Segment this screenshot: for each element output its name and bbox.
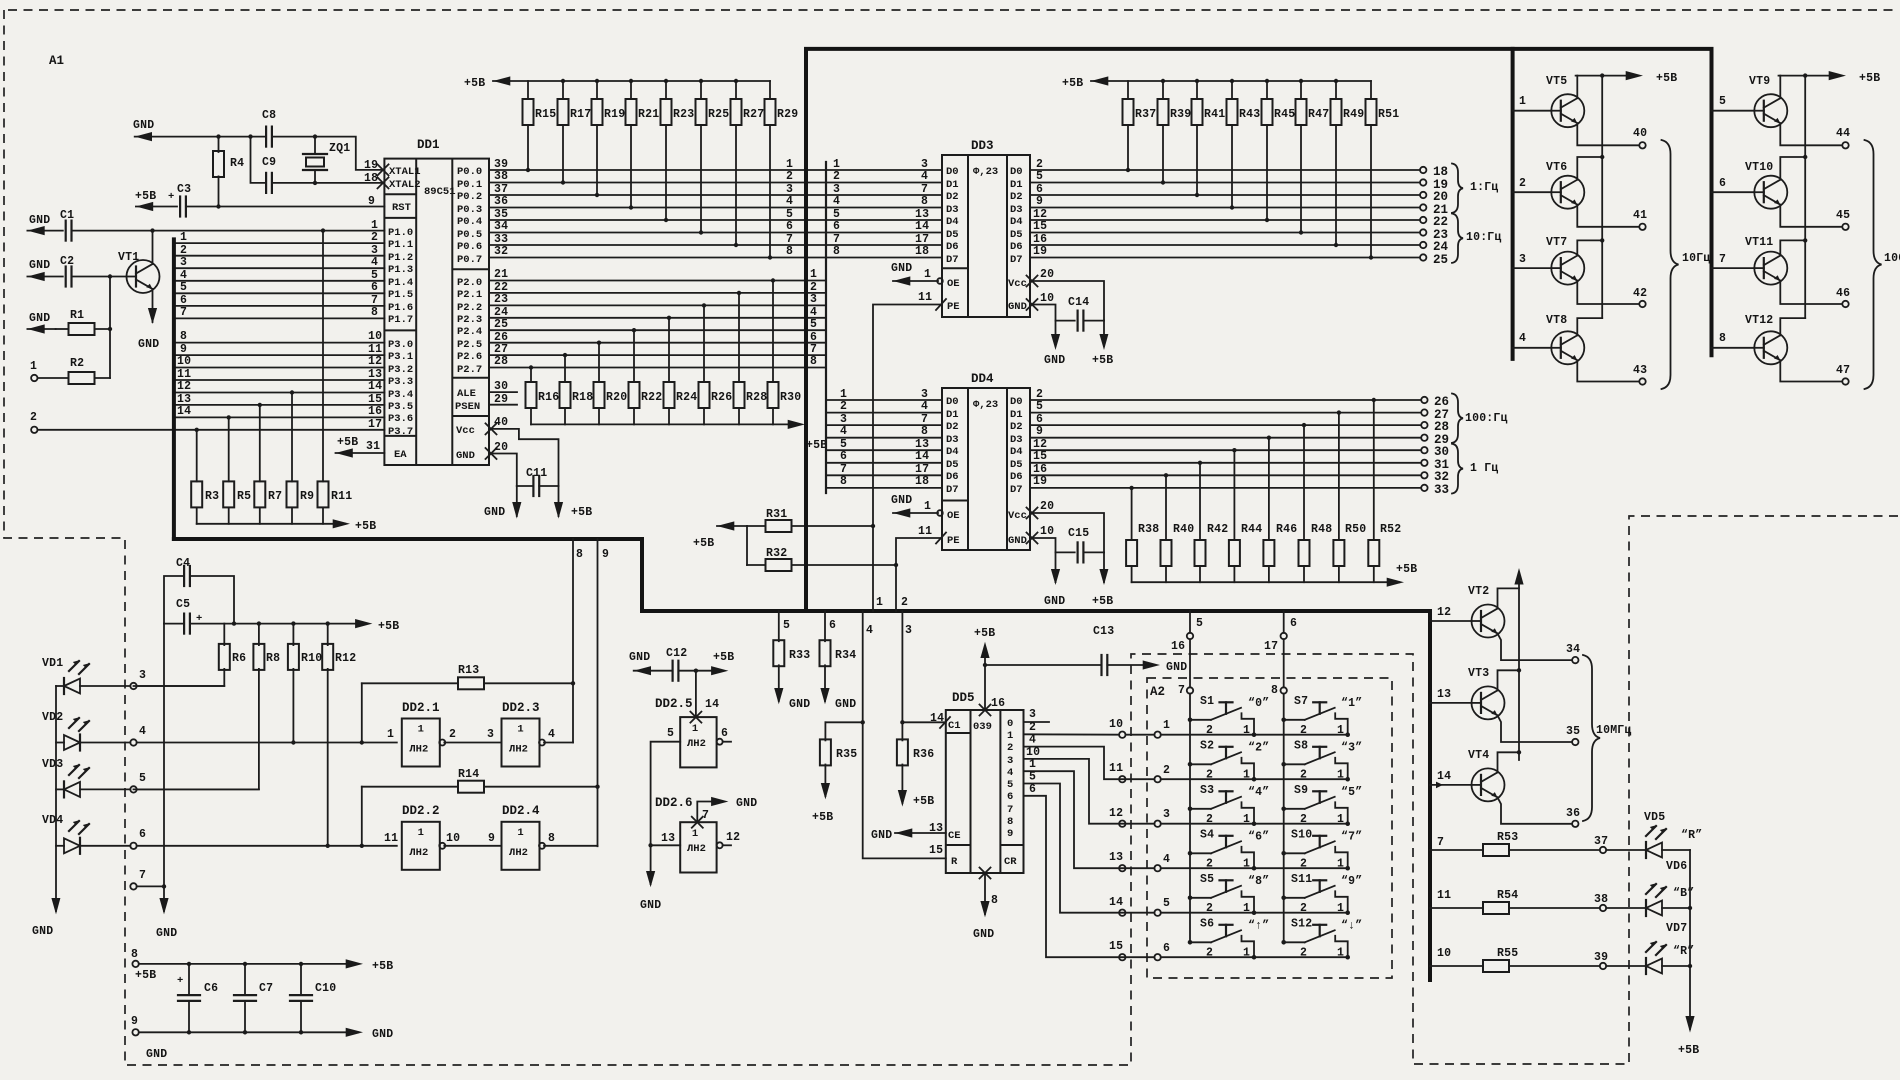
svg-text:R23: R23	[673, 108, 694, 121]
svg-text:R9: R9	[300, 490, 314, 503]
svg-text:DD4: DD4	[971, 372, 994, 386]
svg-text:“↓”: “↓”	[1341, 920, 1362, 933]
svg-text:9: 9	[1036, 195, 1043, 208]
svg-text:ZQ1: ZQ1	[329, 142, 350, 155]
svg-text:R1: R1	[70, 309, 84, 322]
svg-text:1:Гц: 1:Гц	[1470, 181, 1498, 194]
svg-text:8: 8	[131, 948, 138, 961]
svg-text:7: 7	[1437, 836, 1444, 849]
svg-text:10: 10	[368, 330, 382, 343]
svg-text:0: 0	[1007, 718, 1013, 730]
svg-text:8: 8	[180, 330, 187, 343]
svg-text:7: 7	[1007, 804, 1013, 816]
svg-text:40: 40	[494, 416, 508, 429]
svg-text:D0: D0	[946, 396, 959, 408]
svg-text:R46: R46	[1276, 523, 1297, 536]
svg-text:44: 44	[1836, 127, 1850, 140]
svg-text:P0.5: P0.5	[457, 229, 482, 241]
svg-text:+5B: +5B	[355, 520, 376, 533]
svg-text:5: 5	[139, 772, 146, 785]
svg-text:10Гц: 10Гц	[1682, 252, 1710, 265]
svg-text:D6: D6	[946, 241, 959, 253]
svg-text:15: 15	[1109, 940, 1123, 953]
svg-text:GND: GND	[1044, 354, 1065, 367]
svg-text:D4: D4	[1010, 216, 1023, 228]
svg-text:GND: GND	[891, 494, 912, 507]
svg-text:+5B: +5B	[713, 651, 734, 664]
svg-text:100:Гц: 100:Гц	[1465, 412, 1508, 425]
svg-text:5: 5	[180, 281, 187, 294]
svg-text:S7: S7	[1294, 695, 1308, 708]
svg-text:7: 7	[702, 809, 709, 822]
svg-text:GND: GND	[1044, 595, 1065, 608]
svg-text:PE: PE	[947, 535, 960, 547]
svg-text:28: 28	[1434, 420, 1449, 434]
svg-text:S11: S11	[1291, 873, 1312, 886]
svg-text:DD2.6: DD2.6	[655, 796, 693, 810]
svg-text:D4: D4	[946, 446, 959, 458]
svg-text:8: 8	[576, 548, 583, 561]
svg-text:1: 1	[876, 596, 883, 609]
svg-text:8: 8	[1271, 684, 1278, 697]
svg-text:P0.7: P0.7	[457, 254, 482, 266]
svg-text:6: 6	[721, 727, 728, 740]
svg-text:6: 6	[139, 828, 146, 841]
svg-text:P3.2: P3.2	[388, 364, 413, 376]
svg-text:“4”: “4”	[1248, 786, 1269, 799]
svg-text:32: 32	[1434, 470, 1449, 484]
svg-text:D7: D7	[946, 254, 959, 266]
svg-text:16: 16	[991, 697, 1005, 710]
svg-text:4: 4	[921, 400, 928, 413]
svg-text:3: 3	[1163, 808, 1170, 821]
svg-text:C10: C10	[315, 982, 336, 995]
svg-text:R5: R5	[237, 490, 251, 503]
svg-text:20: 20	[1040, 268, 1054, 281]
svg-text:3: 3	[810, 293, 817, 306]
svg-text:D3: D3	[946, 204, 959, 216]
svg-text:+5B: +5B	[974, 627, 995, 640]
svg-text:2: 2	[1300, 724, 1307, 737]
svg-text:18: 18	[364, 172, 378, 185]
svg-text:15: 15	[929, 844, 943, 857]
svg-text:S6: S6	[1200, 918, 1214, 931]
svg-text:PE: PE	[947, 301, 960, 313]
svg-text:+5B: +5B	[571, 506, 592, 519]
svg-text:GND: GND	[640, 899, 661, 912]
svg-text:D7: D7	[1010, 254, 1023, 266]
svg-text:13: 13	[661, 832, 675, 845]
svg-text:12: 12	[1437, 606, 1451, 619]
svg-text:+5B: +5B	[693, 537, 714, 550]
svg-text:4: 4	[786, 195, 793, 208]
svg-text:R35: R35	[836, 748, 857, 761]
svg-text:R48: R48	[1311, 523, 1332, 536]
svg-text:GND: GND	[629, 651, 650, 664]
svg-text:R22: R22	[641, 391, 662, 404]
svg-text:D0: D0	[1010, 166, 1023, 178]
svg-text:4: 4	[371, 256, 378, 269]
svg-text:7: 7	[1719, 253, 1726, 266]
svg-text:GND: GND	[138, 338, 159, 351]
svg-text:GND: GND	[1008, 535, 1027, 547]
svg-text:14: 14	[177, 405, 191, 418]
svg-text:D5: D5	[946, 459, 959, 471]
svg-text:17: 17	[1264, 640, 1278, 653]
svg-text:3: 3	[1007, 755, 1013, 767]
svg-text:D1: D1	[946, 409, 959, 421]
svg-text:6: 6	[1029, 783, 1036, 796]
svg-text:23: 23	[494, 293, 508, 306]
svg-text:R4: R4	[230, 157, 244, 170]
svg-text:VT4: VT4	[1468, 749, 1489, 762]
svg-text:R55: R55	[1497, 947, 1518, 960]
svg-text:Ф,23: Ф,23	[973, 399, 998, 411]
svg-text:12: 12	[368, 355, 382, 368]
svg-text:S5: S5	[1200, 873, 1214, 886]
svg-text:GND: GND	[372, 1028, 393, 1041]
svg-text:1: 1	[180, 231, 187, 244]
svg-text:GND: GND	[29, 259, 50, 272]
svg-text:D6: D6	[946, 471, 959, 483]
svg-text:P0.4: P0.4	[457, 216, 482, 228]
svg-text:P2.4: P2.4	[457, 326, 482, 338]
svg-text:GND: GND	[29, 214, 50, 227]
svg-text:P1.0: P1.0	[388, 227, 413, 239]
svg-text:8: 8	[833, 245, 840, 258]
svg-text:GND: GND	[146, 1048, 167, 1061]
svg-text:19: 19	[1033, 245, 1047, 258]
svg-text:+5B: +5B	[372, 960, 393, 973]
svg-text:24: 24	[1433, 240, 1449, 254]
svg-text:+5B: +5B	[1062, 77, 1083, 90]
svg-text:8: 8	[840, 475, 847, 488]
svg-text:8: 8	[786, 245, 793, 258]
svg-text:37: 37	[1594, 835, 1608, 848]
svg-text:XTAL1: XTAL1	[389, 166, 421, 178]
svg-text:“2”: “2”	[1248, 742, 1269, 755]
svg-text:+5B: +5B	[913, 795, 934, 808]
svg-text:13: 13	[1109, 851, 1123, 864]
svg-text:P0.1: P0.1	[457, 179, 482, 191]
svg-text:11: 11	[918, 525, 932, 538]
svg-text:VD4: VD4	[42, 814, 63, 827]
svg-text:1: 1	[1519, 95, 1526, 108]
svg-text:2: 2	[1300, 947, 1307, 960]
svg-text:R18: R18	[572, 391, 593, 404]
svg-text:Vcc: Vcc	[1008, 510, 1027, 522]
svg-text:6: 6	[1290, 617, 1297, 630]
svg-text:GND: GND	[29, 312, 50, 325]
svg-text:R26: R26	[711, 391, 732, 404]
svg-text:“1”: “1”	[1341, 697, 1362, 710]
svg-text:DD1: DD1	[417, 138, 440, 152]
svg-text:2: 2	[1163, 764, 1170, 777]
svg-text:14: 14	[915, 220, 929, 233]
svg-text:+5B: +5B	[1678, 1044, 1699, 1057]
svg-text:1: 1	[387, 728, 394, 741]
svg-text:14: 14	[705, 698, 719, 711]
svg-text:1: 1	[1337, 902, 1344, 915]
svg-text:39: 39	[1594, 951, 1608, 964]
svg-text:10: 10	[1437, 947, 1451, 960]
svg-text:5: 5	[1029, 771, 1036, 784]
svg-text:89C51: 89C51	[424, 186, 456, 198]
svg-text:5: 5	[1036, 170, 1043, 183]
svg-text:+: +	[177, 975, 183, 987]
svg-text:R17: R17	[570, 108, 591, 121]
svg-text:VT11: VT11	[1745, 236, 1773, 249]
svg-text:2: 2	[1300, 769, 1307, 782]
svg-text:P1.6: P1.6	[388, 302, 413, 314]
svg-text:1: 1	[924, 268, 931, 281]
svg-text:41: 41	[1633, 209, 1647, 222]
svg-text:4: 4	[1163, 853, 1170, 866]
svg-text:+5B: +5B	[337, 436, 358, 449]
svg-text:28: 28	[494, 355, 508, 368]
svg-text:4: 4	[139, 725, 146, 738]
svg-text:P0.6: P0.6	[457, 241, 482, 253]
svg-text:R36: R36	[913, 748, 934, 761]
svg-text:ALE: ALE	[457, 388, 476, 400]
svg-text:D4: D4	[946, 216, 959, 228]
svg-text:S2: S2	[1200, 740, 1214, 753]
svg-text:GND: GND	[484, 506, 505, 519]
svg-text:R30: R30	[780, 391, 801, 404]
svg-text:17: 17	[368, 418, 382, 431]
svg-text:34: 34	[1566, 643, 1580, 656]
svg-text:R27: R27	[743, 108, 764, 121]
svg-text:36: 36	[1566, 807, 1580, 820]
svg-text:A2: A2	[1150, 685, 1165, 699]
svg-text:P0.0: P0.0	[457, 166, 482, 178]
svg-text:6: 6	[1719, 177, 1726, 190]
svg-text:3: 3	[487, 728, 494, 741]
svg-text:+5B: +5B	[464, 77, 485, 90]
svg-text:R10: R10	[301, 652, 322, 665]
svg-text:2: 2	[833, 170, 840, 183]
svg-text:PSEN: PSEN	[455, 401, 480, 413]
svg-text:+5B: +5B	[135, 969, 156, 982]
svg-text:VT8: VT8	[1546, 314, 1567, 327]
svg-text:R54: R54	[1497, 889, 1518, 902]
svg-text:9: 9	[602, 548, 609, 561]
svg-text:16: 16	[1171, 640, 1185, 653]
svg-text:D5: D5	[946, 229, 959, 241]
svg-text:GND: GND	[835, 698, 856, 711]
svg-text:R37: R37	[1135, 108, 1156, 121]
svg-text:C6: C6	[204, 982, 218, 995]
svg-text:6: 6	[840, 450, 847, 463]
svg-text:42: 42	[1633, 287, 1647, 300]
svg-text:1: 1	[1243, 902, 1250, 915]
svg-text:DD2.4: DD2.4	[502, 804, 540, 818]
svg-text:R13: R13	[458, 664, 479, 677]
svg-text:CE: CE	[948, 830, 961, 842]
svg-text:XTAL2: XTAL2	[389, 179, 421, 191]
svg-text:D2: D2	[1010, 421, 1023, 433]
svg-text:4: 4	[921, 170, 928, 183]
svg-text:8: 8	[548, 832, 555, 845]
svg-text:S10: S10	[1291, 829, 1312, 842]
svg-text:P3.4: P3.4	[388, 389, 413, 401]
svg-text:+5B: +5B	[135, 190, 156, 203]
svg-text:R41: R41	[1204, 108, 1225, 121]
svg-text:19: 19	[364, 159, 378, 172]
svg-text:C3: C3	[177, 183, 191, 196]
svg-text:+5B: +5B	[806, 439, 827, 452]
svg-text:5: 5	[1719, 95, 1726, 108]
svg-text:R11: R11	[331, 490, 352, 503]
svg-text:2: 2	[1206, 813, 1213, 826]
svg-text:Vcc: Vcc	[1008, 278, 1027, 290]
svg-text:GND: GND	[1008, 301, 1027, 313]
svg-text:C14: C14	[1068, 296, 1089, 309]
svg-text:20: 20	[1433, 190, 1448, 204]
svg-text:5: 5	[667, 727, 674, 740]
svg-text:11: 11	[384, 832, 398, 845]
svg-text:VT3: VT3	[1468, 667, 1489, 680]
svg-text:R16: R16	[538, 391, 559, 404]
svg-text:R44: R44	[1241, 523, 1262, 536]
svg-text:2: 2	[1206, 769, 1213, 782]
svg-text:D1: D1	[1010, 179, 1023, 191]
svg-text:9: 9	[1036, 425, 1043, 438]
svg-text:DD2.2: DD2.2	[402, 804, 440, 818]
svg-text:1: 1	[1243, 947, 1250, 960]
svg-text:3: 3	[139, 669, 146, 682]
svg-text:GND: GND	[32, 925, 53, 938]
svg-text:“R”: “R”	[1681, 829, 1702, 842]
svg-text:R51: R51	[1378, 108, 1399, 121]
svg-text:6: 6	[1163, 942, 1170, 955]
svg-text:D7: D7	[1010, 484, 1023, 496]
svg-text:47: 47	[1836, 364, 1850, 377]
svg-text:+5B: +5B	[378, 620, 399, 633]
svg-text:D5: D5	[1010, 229, 1023, 241]
svg-text:5: 5	[1163, 897, 1170, 910]
svg-text:R: R	[951, 856, 958, 868]
svg-text:P3.0: P3.0	[388, 339, 413, 351]
svg-text:C11: C11	[526, 467, 547, 480]
svg-text:R29: R29	[777, 108, 798, 121]
svg-text:D2: D2	[1010, 191, 1023, 203]
svg-text:EA: EA	[394, 449, 407, 461]
svg-text:25: 25	[494, 318, 508, 331]
svg-text:GND: GND	[133, 119, 154, 132]
svg-text:R34: R34	[835, 649, 856, 662]
svg-text:14: 14	[915, 450, 929, 463]
svg-text:3: 3	[1029, 708, 1036, 721]
svg-text:9: 9	[368, 195, 375, 208]
svg-text:+: +	[168, 191, 174, 203]
svg-text:1: 1	[1243, 813, 1250, 826]
svg-text:12: 12	[726, 831, 740, 844]
svg-text:P2.7: P2.7	[457, 364, 482, 376]
svg-text:4: 4	[1007, 767, 1013, 779]
svg-text:A1: A1	[49, 54, 64, 68]
svg-text:R42: R42	[1207, 523, 1228, 536]
svg-text:D5: D5	[1010, 459, 1023, 471]
svg-text:P2.5: P2.5	[457, 339, 482, 351]
svg-text:S12: S12	[1291, 918, 1312, 931]
svg-text:“5”: “5”	[1341, 786, 1362, 799]
svg-text:8: 8	[1007, 816, 1013, 828]
svg-text:R53: R53	[1497, 831, 1518, 844]
svg-text:P0.3: P0.3	[457, 204, 482, 216]
svg-text:2: 2	[1519, 177, 1526, 190]
svg-text:1: 1	[1337, 858, 1344, 871]
svg-text:2: 2	[786, 170, 793, 183]
svg-text:10МГц: 10МГц	[1596, 724, 1632, 737]
svg-text:1: 1	[924, 500, 931, 513]
svg-text:30: 30	[494, 380, 508, 393]
svg-text:P2.0: P2.0	[457, 277, 482, 289]
svg-text:2: 2	[1300, 813, 1307, 826]
svg-text:1: 1	[30, 360, 37, 373]
svg-text:14: 14	[368, 380, 382, 393]
svg-text:14: 14	[1109, 896, 1123, 909]
svg-text:D1: D1	[946, 179, 959, 191]
svg-text:“3”: “3”	[1341, 742, 1362, 755]
svg-text:P2.2: P2.2	[457, 302, 482, 314]
svg-text:P1.4: P1.4	[388, 277, 413, 289]
svg-text:1: 1	[1337, 724, 1344, 737]
svg-text:2: 2	[30, 411, 37, 424]
svg-text:3: 3	[1519, 253, 1526, 266]
svg-text:GND: GND	[871, 829, 892, 842]
svg-text:4: 4	[548, 728, 555, 741]
svg-text:“7”: “7”	[1341, 831, 1362, 844]
svg-text:5: 5	[1196, 617, 1203, 630]
svg-text:R45: R45	[1274, 108, 1295, 121]
svg-text:GND: GND	[736, 797, 757, 810]
svg-text:“9”: “9”	[1341, 875, 1362, 888]
svg-text:13: 13	[1437, 688, 1451, 701]
svg-text:VT10: VT10	[1745, 161, 1773, 174]
svg-text:40: 40	[1633, 127, 1647, 140]
svg-text:C8: C8	[262, 109, 276, 122]
svg-text:8: 8	[921, 195, 928, 208]
svg-text:2: 2	[1300, 858, 1307, 871]
svg-text:1: 1	[1243, 769, 1250, 782]
svg-text:C9: C9	[262, 156, 276, 169]
svg-text:38: 38	[1594, 893, 1608, 906]
svg-text:R25: R25	[708, 108, 729, 121]
svg-text:34: 34	[494, 220, 508, 233]
svg-text:VT6: VT6	[1546, 161, 1567, 174]
svg-text:12: 12	[1109, 807, 1123, 820]
svg-text:ЛН2: ЛН2	[687, 738, 706, 750]
svg-text:26: 26	[1434, 395, 1449, 409]
svg-text:33: 33	[1434, 483, 1449, 497]
svg-text:Vcc: Vcc	[456, 425, 475, 437]
svg-text:R33: R33	[789, 649, 810, 662]
svg-text:18: 18	[1433, 165, 1448, 179]
svg-text:36: 36	[494, 195, 508, 208]
svg-text:2: 2	[1007, 742, 1013, 754]
svg-text:D0: D0	[1010, 396, 1023, 408]
svg-text:DD2.3: DD2.3	[502, 701, 540, 715]
svg-text:5: 5	[1007, 779, 1013, 791]
svg-text:R12: R12	[335, 652, 356, 665]
svg-text:“6”: “6”	[1248, 831, 1269, 844]
svg-text:38: 38	[494, 170, 508, 183]
svg-text:VD7: VD7	[1666, 922, 1687, 935]
svg-text:2: 2	[1206, 858, 1213, 871]
svg-text:P3.5: P3.5	[388, 401, 413, 413]
svg-text:31: 31	[366, 440, 380, 453]
